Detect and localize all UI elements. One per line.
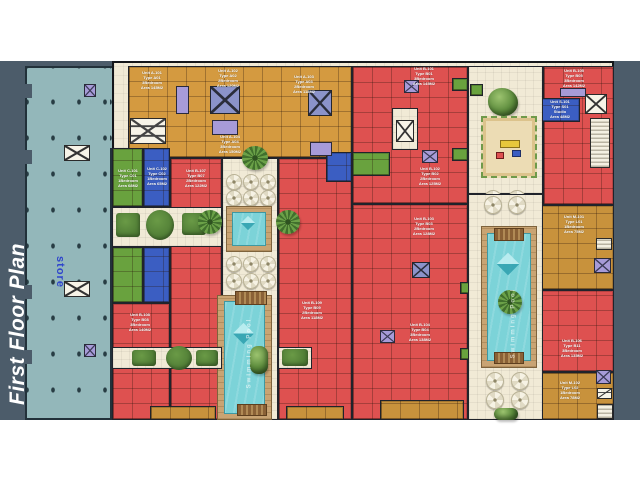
umbrella-icon: [484, 196, 502, 214]
stairs-icon: [308, 90, 332, 116]
hedge-icon: [132, 350, 156, 366]
unit-block-blue-2: [143, 247, 170, 303]
playground-equipment-icon: [512, 150, 521, 157]
pool-label: Swimming Pool: [246, 318, 252, 389]
tree-icon: [488, 88, 518, 116]
tree-icon: [146, 210, 174, 240]
store-entry-notch: [25, 84, 32, 98]
elevator-icon: [596, 370, 611, 384]
umbrella-icon: [486, 372, 504, 390]
store-area: [25, 66, 112, 420]
elevator-icon: [422, 150, 438, 163]
floor-plan-page: First Floor Plan store: [0, 0, 640, 480]
palm-tree-icon: [276, 210, 300, 234]
lift-shaft-icon: [597, 404, 613, 419]
umbrella-icon: [226, 256, 242, 272]
elevator-icon: [84, 344, 96, 357]
hedge-icon: [116, 213, 140, 237]
elevator-icon: [176, 86, 189, 114]
umbrella-icon: [226, 174, 242, 190]
umbrella-icon: [511, 391, 529, 409]
pool-planter: [250, 346, 268, 374]
unit-block-gold-bottom: [150, 406, 216, 420]
umbrella-icon: [260, 174, 276, 190]
umbrella-icon: [508, 196, 526, 214]
unit-block-gold-bottom: [380, 400, 464, 420]
unit-block-red-mid: [352, 204, 468, 420]
unit-block-red-left-column: [170, 158, 222, 420]
unit-block-studio: [540, 98, 580, 122]
playground-equipment-icon: [500, 140, 520, 148]
service-room-green: [452, 148, 468, 161]
unit-block-gold-bottom: [286, 406, 344, 420]
umbrella-icon: [226, 190, 242, 206]
lift-shaft-icon: [590, 118, 610, 168]
stairs-icon: [597, 388, 612, 399]
unit-block-blue-1: [143, 148, 170, 207]
pergola-icon: [494, 228, 524, 241]
umbrella-icon: [260, 273, 276, 289]
store-label: store: [54, 256, 66, 288]
unit-block-blue-mid: [326, 152, 352, 182]
umbrella-icon: [243, 174, 259, 190]
umbrella-icon: [486, 391, 504, 409]
service-room-green: [452, 78, 468, 91]
elevator-lobby: [560, 88, 586, 97]
unit-block-green-1: [112, 148, 143, 207]
umbrella-icon: [511, 372, 529, 390]
elevator-icon: [380, 330, 395, 343]
umbrella-icon: [243, 190, 259, 206]
palm-tree-icon: [242, 146, 268, 170]
stairs-icon: [412, 262, 430, 278]
hedge-icon: [196, 350, 218, 366]
lift-shaft-icon: [596, 238, 612, 250]
store-entry-notch: [25, 285, 32, 299]
stairs-icon: [64, 281, 90, 297]
stairs-icon: [396, 120, 414, 142]
unit-block-green-mid: [352, 152, 390, 176]
umbrella-icon: [260, 190, 276, 206]
stairs-icon: [130, 118, 166, 144]
pergola-icon: [494, 352, 524, 364]
stairs-icon: [585, 94, 607, 114]
tree-icon: [166, 346, 192, 370]
elevator-icon: [84, 84, 96, 97]
stairs-icon: [64, 145, 90, 161]
unit-block-green-2: [112, 247, 143, 303]
hedge-icon: [282, 349, 308, 366]
umbrella-icon: [243, 273, 259, 289]
elevator-icon: [310, 142, 332, 156]
pool-label: Swimming Pool: [510, 288, 516, 359]
tree-icon: [494, 408, 518, 420]
playground-equipment-icon: [496, 152, 504, 159]
stairs-icon: [210, 86, 240, 114]
pergola-icon: [235, 291, 267, 305]
elevator-icon: [404, 80, 419, 93]
pergola-icon: [237, 404, 267, 416]
unit-block-red-right-low: [538, 290, 614, 372]
elevator-icon: [594, 258, 611, 273]
umbrella-icon: [226, 273, 242, 289]
palm-tree-icon: [198, 210, 222, 234]
store-entry-notch: [25, 150, 32, 164]
store-entry-notch: [25, 350, 32, 364]
unit-block-red-center-column: [278, 158, 352, 420]
elevator-icon: [212, 120, 238, 135]
umbrella-icon: [243, 256, 259, 272]
umbrella-icon: [260, 256, 276, 272]
service-room-green: [470, 84, 483, 96]
